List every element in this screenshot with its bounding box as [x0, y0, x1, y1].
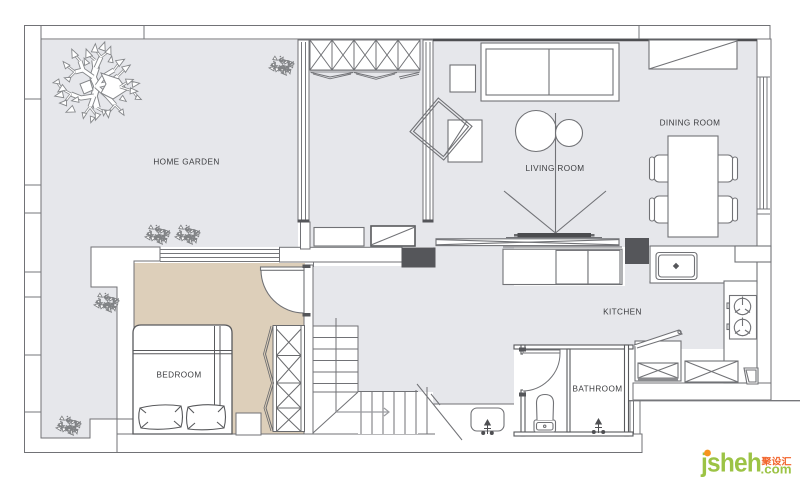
svg-text:DINING ROOM: DINING ROOM	[660, 119, 721, 128]
svg-text:BEDROOM: BEDROOM	[156, 371, 201, 380]
svg-text:BATHROOM: BATHROOM	[573, 385, 623, 394]
svg-text:聚设汇: 聚设汇	[760, 456, 791, 467]
svg-text:KITCHEN: KITCHEN	[603, 308, 642, 317]
svg-text:LIVING ROOM: LIVING ROOM	[526, 164, 585, 173]
svg-text:HOME GARDEN: HOME GARDEN	[153, 158, 219, 167]
